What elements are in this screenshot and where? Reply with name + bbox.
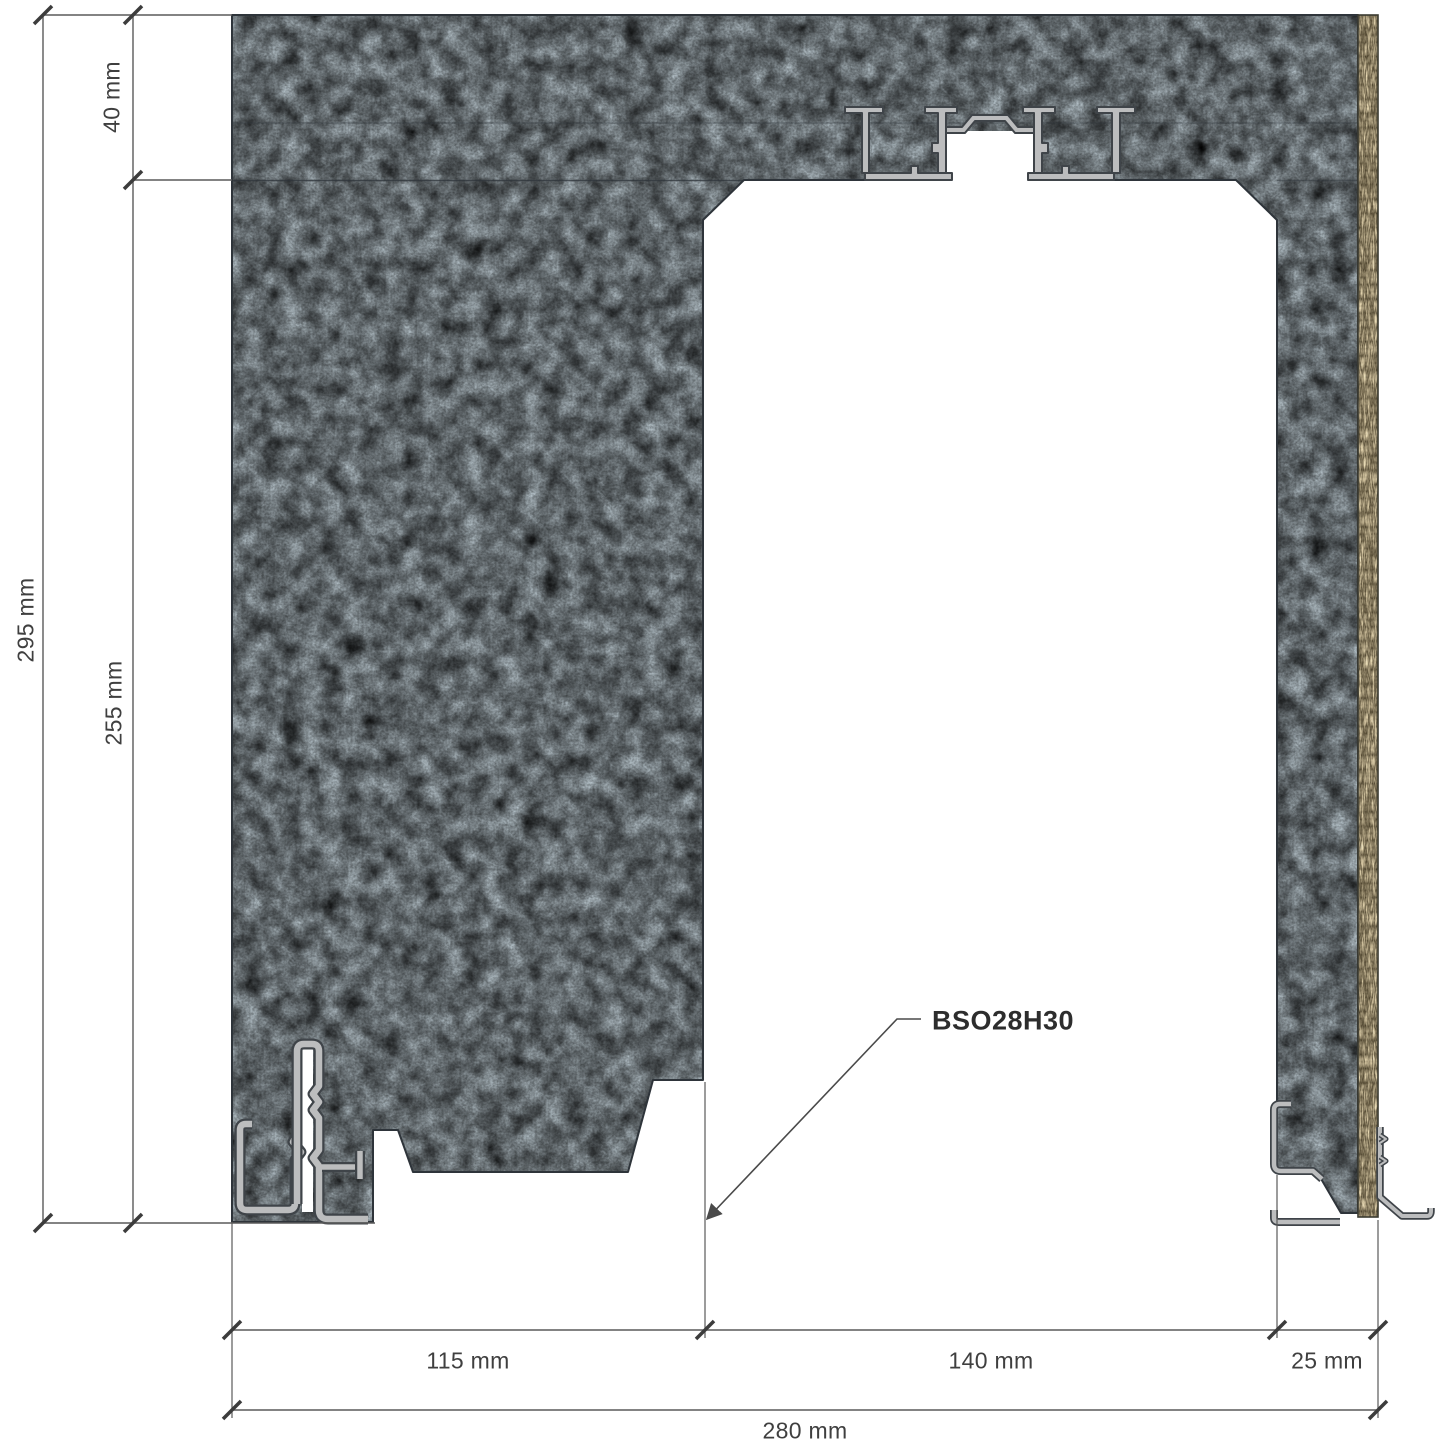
dim-label-total-height: 295 mm	[13, 578, 40, 663]
dim-label-left-wall-width: 115 mm	[426, 1348, 509, 1375]
jamb-channel-slot	[302, 1048, 313, 1212]
dim-label-right-wall-width: 25 mm	[1291, 1348, 1363, 1375]
floor-angle-bar	[1274, 1210, 1340, 1222]
leader-line	[707, 1019, 921, 1219]
technical-section-drawing: 40 mm 295 mm 255 mm 115 mm 140 mm 25 mm …	[0, 0, 1443, 1447]
dim-label-opening-width: 140 mm	[949, 1348, 1034, 1375]
dim-label-total-width: 280 mm	[763, 1418, 848, 1445]
section-drawing-canvas	[0, 0, 1443, 1447]
concrete-wall-section	[232, 15, 1358, 1222]
dim-label-opening-height: 255 mm	[101, 661, 128, 746]
dim-label-lintel-height: 40 mm	[99, 61, 126, 133]
product-label: BSO28H30	[932, 1006, 1074, 1037]
wood-board-strip	[1358, 15, 1378, 1217]
track-cavity	[946, 131, 1034, 181]
